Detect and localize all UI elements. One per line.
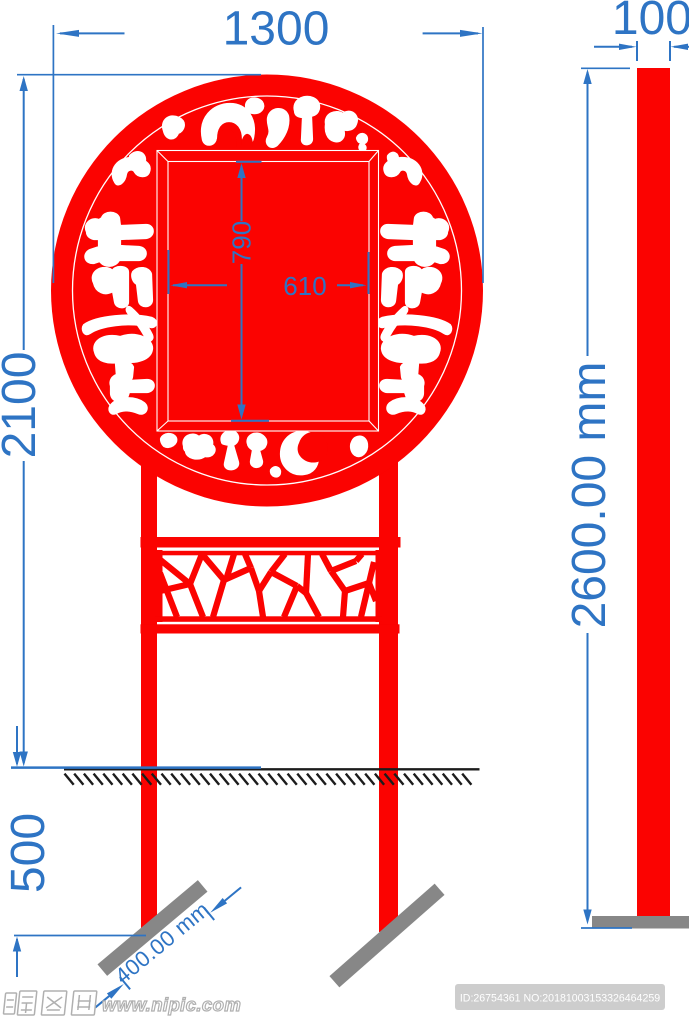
svg-text:ID:26754361 NO:201810031533264: ID:26754361 NO:20181003153326464259 — [460, 993, 660, 1005]
svg-text:1300: 1300 — [223, 3, 330, 56]
svg-text:2600.00 mm: 2600.00 mm — [563, 362, 616, 629]
svg-text:www.nipic.com: www.nipic.com — [102, 994, 241, 1015]
svg-text:2100: 2100 — [0, 352, 46, 459]
svg-text:610: 610 — [283, 271, 326, 301]
svg-text:500: 500 — [2, 813, 55, 893]
svg-text:790: 790 — [227, 221, 257, 264]
svg-text:100: 100 — [612, 0, 689, 45]
